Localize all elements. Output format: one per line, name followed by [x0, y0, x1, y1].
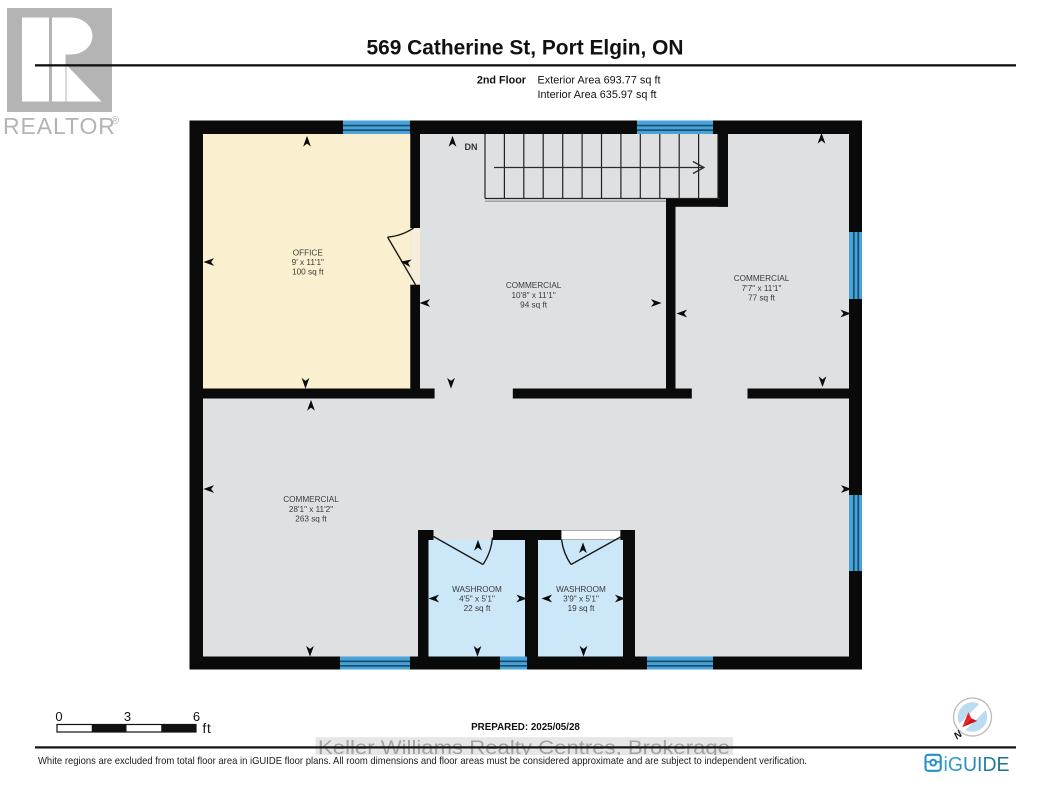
svg-text:263 sq ft: 263 sq ft — [295, 515, 327, 524]
svg-text:0: 0 — [55, 709, 62, 724]
svg-text:iGUIDE: iGUIDE — [944, 753, 1010, 776]
svg-text:REALTOR: REALTOR — [3, 113, 116, 139]
svg-text:WASHROOM: WASHROOM — [556, 585, 606, 594]
svg-text:22 sq ft: 22 sq ft — [464, 604, 492, 613]
svg-text:WASHROOM: WASHROOM — [452, 585, 502, 594]
svg-text:100 sq ft: 100 sq ft — [292, 268, 324, 277]
svg-text:Interior Area 635.97 sq ft: Interior Area 635.97 sq ft — [538, 89, 657, 101]
svg-text:7'7" x 11'1": 7'7" x 11'1" — [742, 284, 782, 293]
svg-text:®: ® — [111, 115, 119, 127]
svg-text:19 sq ft: 19 sq ft — [568, 604, 596, 613]
svg-text:PREPARED: 2025/05/28: PREPARED: 2025/05/28 — [471, 722, 580, 733]
svg-text:COMMERCIAL: COMMERCIAL — [506, 281, 562, 290]
svg-text:94 sq ft: 94 sq ft — [520, 301, 548, 310]
svg-text:OFFICE: OFFICE — [293, 249, 324, 258]
svg-text:ft: ft — [203, 721, 212, 736]
svg-text:77 sq ft: 77 sq ft — [748, 294, 776, 303]
svg-text:3: 3 — [124, 709, 131, 724]
svg-text:COMMERCIAL: COMMERCIAL — [734, 274, 790, 283]
svg-text:569 Catherine St, Port Elgin,: 569 Catherine St, Port Elgin, ON — [367, 35, 684, 60]
svg-text:Exterior Area 693.77 sq ft: Exterior Area 693.77 sq ft — [538, 75, 661, 87]
svg-text:4'5" x 5'1": 4'5" x 5'1" — [459, 595, 495, 604]
svg-text:10'8" x 11'1": 10'8" x 11'1" — [511, 291, 555, 300]
svg-text:28'1" x 11'2": 28'1" x 11'2" — [289, 505, 333, 514]
svg-text:2nd Floor: 2nd Floor — [477, 75, 527, 87]
svg-text:White regions are excluded fro: White regions are excluded from total fl… — [38, 755, 807, 767]
svg-text:9' x 11'1": 9' x 11'1" — [292, 258, 324, 267]
svg-text:3'9" x 5'1": 3'9" x 5'1" — [563, 595, 599, 604]
svg-text:6: 6 — [193, 709, 200, 724]
svg-text:DN: DN — [465, 142, 478, 152]
svg-text:COMMERCIAL: COMMERCIAL — [283, 495, 339, 504]
